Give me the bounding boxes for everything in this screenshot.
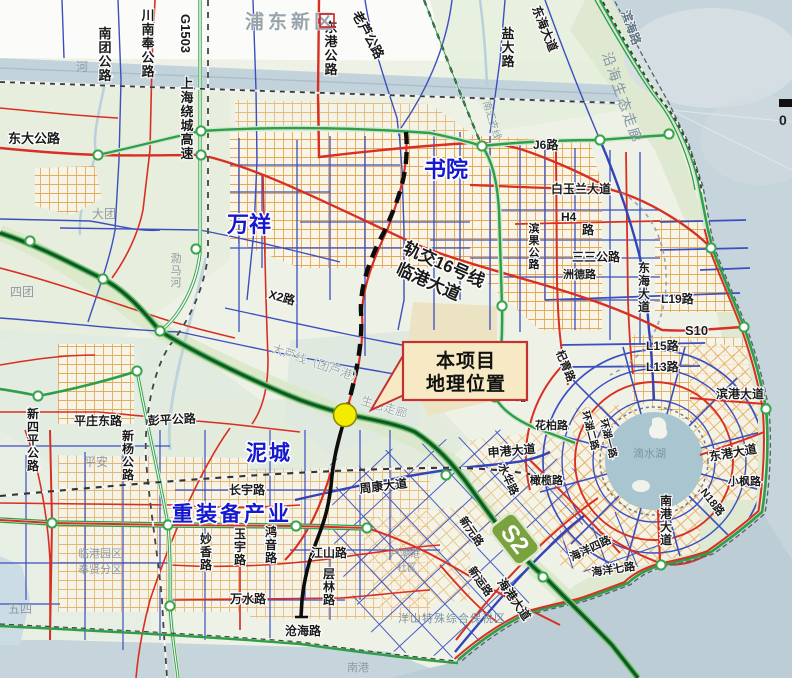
svg-text:重装备产业: 重装备产业: [172, 502, 292, 526]
svg-text:长宇路: 长宇路: [229, 482, 266, 497]
svg-text:洋山特殊综合保税区: 洋山特殊综合保税区: [398, 611, 506, 625]
svg-text:滴水湖: 滴水湖: [633, 446, 666, 460]
svg-text:L15路: L15路: [646, 338, 680, 353]
svg-text:万祥: 万祥: [226, 212, 271, 237]
svg-text:大团: 大团: [92, 207, 116, 221]
svg-text:五四: 五四: [8, 602, 32, 616]
svg-text:万水路: 万水路: [229, 591, 267, 606]
svg-text:南团公路: 南团公路: [98, 26, 112, 83]
svg-text:南港大道: 南港大道: [660, 493, 673, 547]
svg-text:0: 0: [779, 112, 787, 128]
svg-text:L13路: L13路: [646, 359, 680, 374]
svg-text:上海绕城高速: 上海绕城高速: [180, 76, 193, 161]
svg-text:四团: 四团: [10, 285, 34, 299]
svg-text:临港园区: 临港园区: [78, 546, 122, 560]
svg-text:G1503: G1503: [178, 14, 193, 53]
svg-text:橄榄路: 橄榄路: [530, 473, 564, 487]
svg-text:东海大道: 东海大道: [638, 260, 650, 314]
svg-text:玉宇路: 玉宇路: [234, 527, 247, 567]
svg-text:三三公路: 三三公路: [572, 249, 621, 264]
svg-text:路: 路: [582, 222, 595, 237]
svg-text:滨港大道: 滨港大道: [716, 386, 764, 401]
svg-text:社区: 社区: [397, 561, 417, 574]
svg-text:花柏路: 花柏路: [535, 418, 569, 432]
svg-text:地理位置: 地理位置: [426, 372, 506, 395]
svg-text:江山路: 江山路: [311, 545, 348, 560]
svg-text:L19路: L19路: [661, 291, 695, 306]
svg-text:书院: 书院: [424, 157, 468, 182]
svg-text:滨果公路: 滨果公路: [528, 221, 541, 271]
svg-text:平庄东路: 平庄东路: [74, 413, 123, 428]
svg-text:川南奉公路: 川南奉公路: [140, 8, 155, 79]
svg-text:芦潮港: 芦潮港: [390, 547, 420, 560]
svg-text:鸿音路: 鸿音路: [265, 524, 278, 565]
svg-text:层林路: 层林路: [323, 567, 336, 607]
svg-text:妙香路: 妙香路: [199, 531, 213, 572]
svg-text:平安: 平安: [84, 454, 108, 469]
svg-text:洲德路: 洲德路: [563, 267, 597, 281]
svg-text:河: 河: [76, 60, 88, 74]
svg-text:沧海路: 沧海路: [285, 623, 322, 638]
svg-text:新杨公路: 新杨公路: [122, 428, 135, 482]
svg-text:H4: H4: [561, 210, 577, 224]
svg-text:奉贤分区: 奉贤分区: [78, 562, 122, 576]
svg-text:S10: S10: [685, 323, 708, 338]
svg-text:彭平公路: 彭平公路: [147, 410, 197, 428]
svg-text:白玉兰大道: 白玉兰大道: [551, 181, 611, 196]
svg-text:泐马河: 泐马河: [171, 251, 182, 289]
svg-text:东大公路: 东大公路: [8, 131, 61, 146]
svg-text:泥城: 泥城: [246, 441, 292, 465]
svg-text:本项目: 本项目: [436, 349, 496, 372]
svg-text:盐大路: 盐大路: [501, 26, 515, 69]
svg-text:新四平公路: 新四平公路: [27, 406, 40, 473]
svg-text:J6路: J6路: [533, 137, 559, 152]
svg-text:小枫路: 小枫路: [727, 474, 762, 488]
svg-text:南港: 南港: [347, 661, 369, 674]
